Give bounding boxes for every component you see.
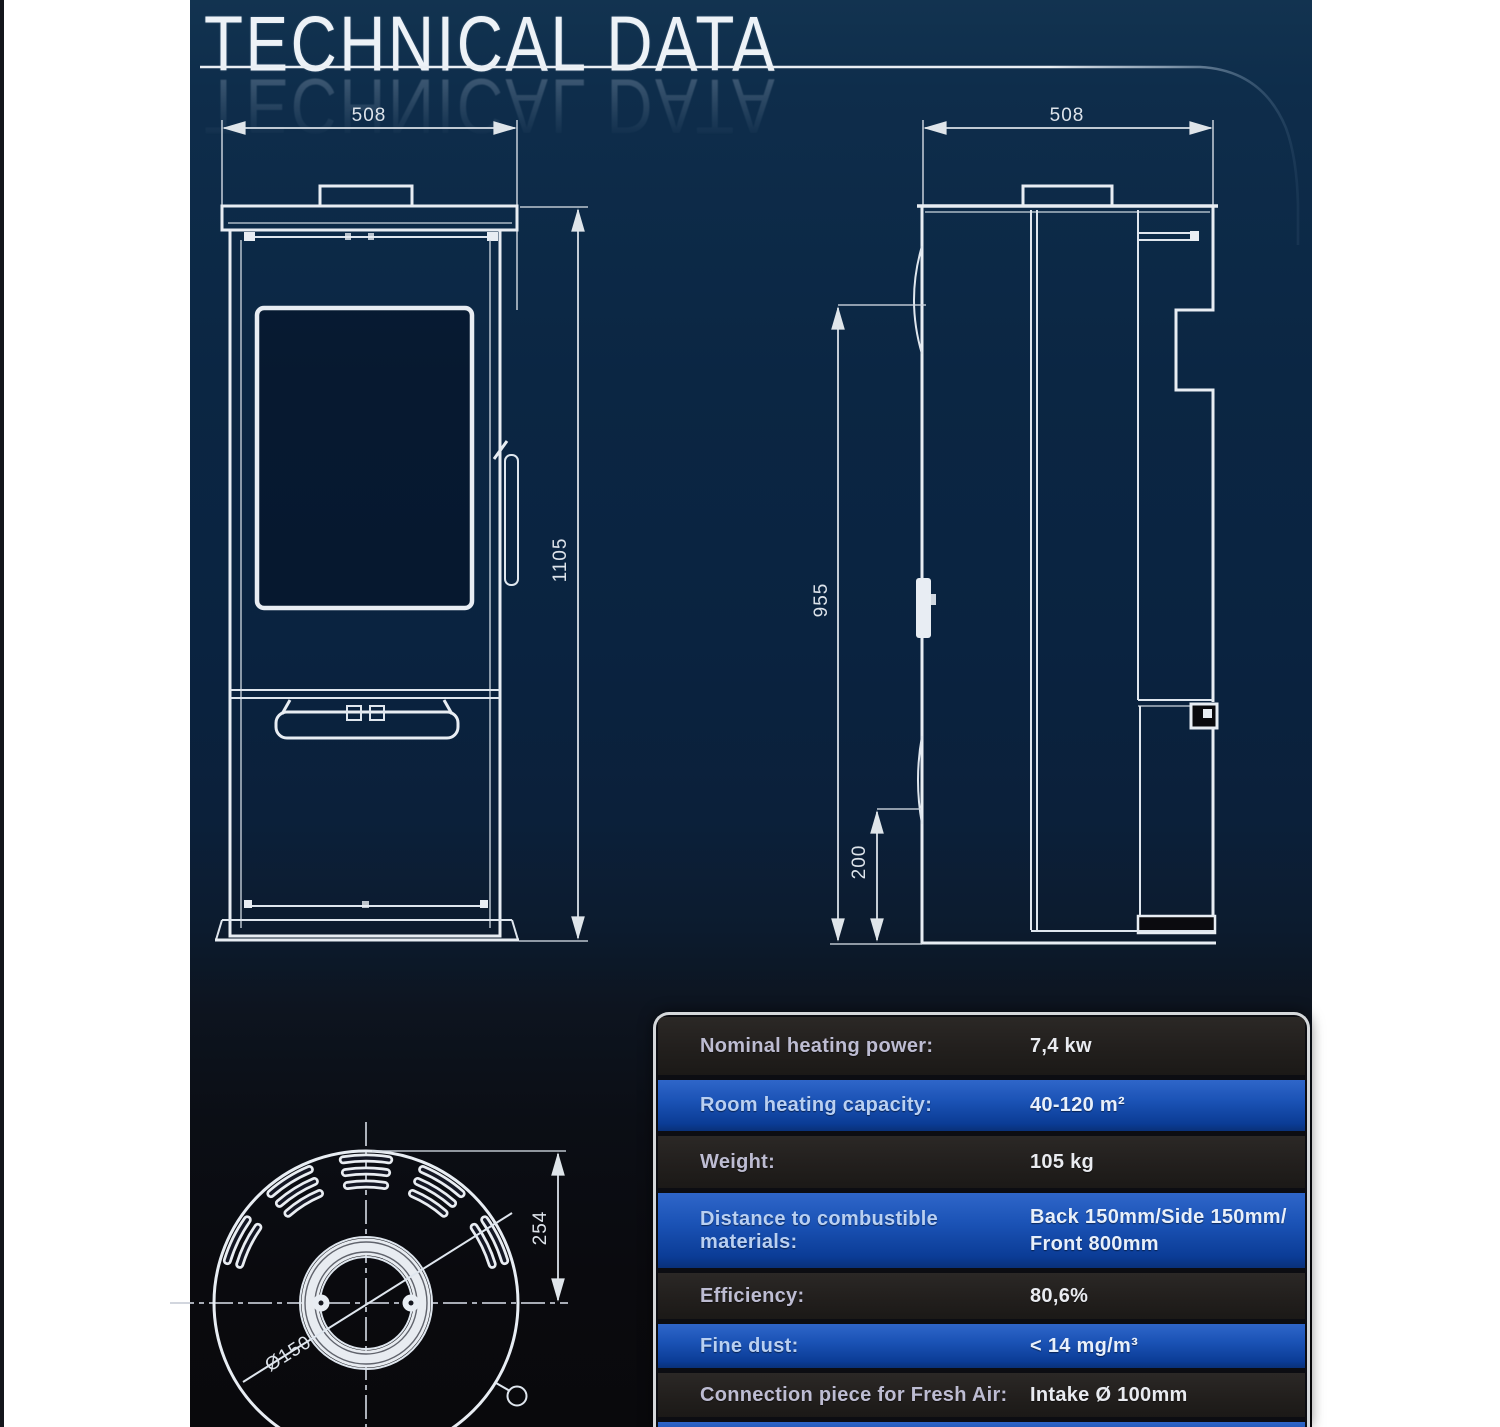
spec-row: Nominal heating power: 7,4 kw (658, 1017, 1305, 1075)
side-door-handle (916, 578, 931, 638)
spec-label: Weight: (658, 1151, 1030, 1174)
dim-label-side-depth: 508 (1050, 105, 1085, 126)
spec-value: 7,4 kw (1030, 1033, 1305, 1060)
spec-value: Intake Ø 100mm (1030, 1382, 1305, 1409)
spec-row: Efficiency: 80,6% (658, 1273, 1305, 1319)
spec-value: 80,6% (1030, 1283, 1305, 1310)
spec-value: Back 150mm/Side 150mm/ Front 800mm (1030, 1204, 1305, 1258)
dim-label-side-lower-height: 200 (849, 845, 870, 880)
dim-label-front-width: 508 (352, 105, 387, 126)
spec-label: Fine dust: (658, 1335, 1030, 1358)
spec-label: Efficiency: (658, 1285, 1030, 1308)
spec-table: Nominal heating power: 7,4 kw Room heati… (653, 1012, 1310, 1427)
dim-label-flue-diameter: Ø150 (262, 1332, 316, 1377)
spec-value: 105 kg (1030, 1149, 1305, 1176)
spec-row: Distance to combustible materials: Back … (658, 1193, 1305, 1268)
spec-label: Distance to combustible materials: (658, 1208, 1030, 1254)
spec-table-bottom-strip (658, 1422, 1305, 1427)
spec-label: Room heating capacity: (658, 1094, 1030, 1117)
front-view-drawing: 508 (215, 105, 588, 941)
front-door-handle (505, 455, 518, 585)
spec-row: Connection piece for Fresh Air: Intake Ø… (658, 1373, 1305, 1417)
dim-label-front-height: 1105 (550, 538, 571, 583)
spec-label: Connection piece for Fresh Air: (658, 1384, 1030, 1407)
grate-shaker-knob (508, 1387, 527, 1406)
dim-label-side-rear-height: 955 (811, 583, 832, 618)
spec-value: < 14 mg/m³ (1030, 1333, 1305, 1360)
spec-value: 40-120 m² (1030, 1092, 1305, 1119)
top-view-drawing: Ø150 254 (170, 1122, 568, 1427)
spec-label: Nominal heating power: (658, 1035, 1030, 1058)
spec-row: Weight: 105 kg (658, 1136, 1305, 1188)
title-underline-swoosh (200, 67, 1298, 245)
front-glass-window (257, 308, 472, 608)
spec-row: Room heating capacity: 40-120 m² (658, 1080, 1305, 1131)
spec-table-rows: Nominal heating power: 7,4 kw Room heati… (656, 1015, 1307, 1417)
technical-datasheet-page: { "title": "TECHNICAL DATA", "dimensions… (0, 0, 1500, 1427)
ash-door-handle (276, 712, 458, 738)
spec-row: Fine dust: < 14 mg/m³ (658, 1324, 1305, 1368)
side-view-drawing: 508 955 (811, 105, 1218, 944)
dim-label-top-offset: 254 (530, 1211, 551, 1246)
